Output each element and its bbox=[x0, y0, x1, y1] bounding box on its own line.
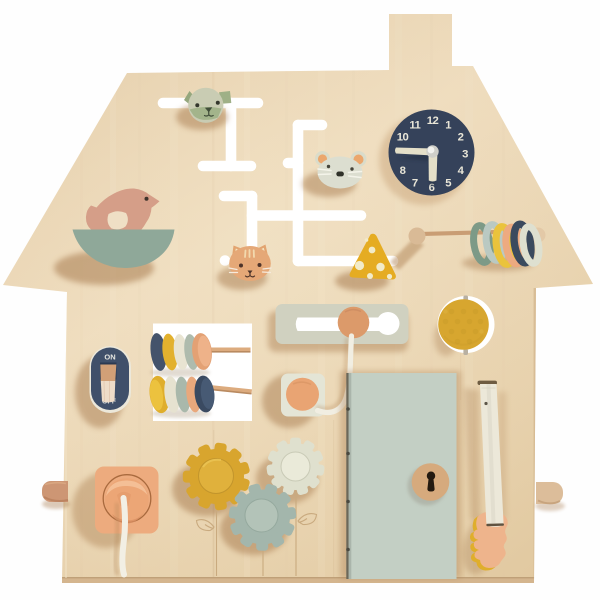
svg-text:1: 1 bbox=[445, 119, 451, 131]
svg-text:5: 5 bbox=[445, 177, 451, 189]
svg-text:12: 12 bbox=[427, 115, 439, 127]
svg-text:ON: ON bbox=[104, 353, 115, 362]
svg-text:3: 3 bbox=[462, 148, 468, 160]
svg-text:7: 7 bbox=[412, 177, 418, 189]
svg-text:8: 8 bbox=[400, 165, 406, 177]
svg-text:2: 2 bbox=[458, 132, 464, 144]
svg-text:11: 11 bbox=[409, 119, 420, 131]
svg-text:10: 10 bbox=[397, 132, 409, 144]
